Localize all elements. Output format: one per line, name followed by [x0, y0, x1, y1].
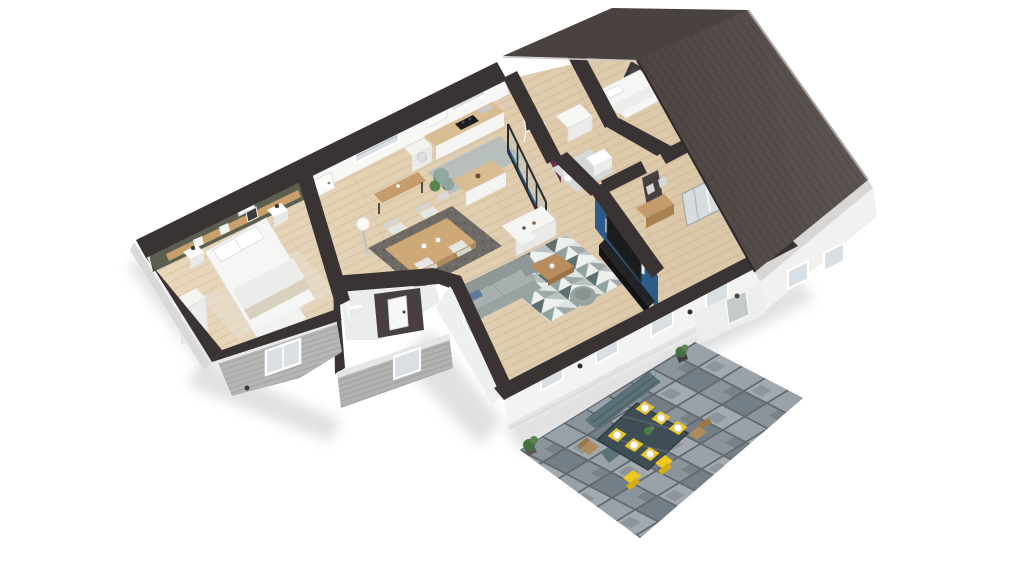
wall-light: [688, 310, 693, 315]
wall-light: [735, 294, 740, 299]
room-mudroom: [341, 285, 440, 340]
wall-light: [578, 364, 583, 369]
wall-light: [245, 386, 250, 391]
round-chair: [570, 286, 596, 306]
floorplan-render: [0, 0, 1024, 576]
floorplan-canvas: [0, 0, 1024, 576]
